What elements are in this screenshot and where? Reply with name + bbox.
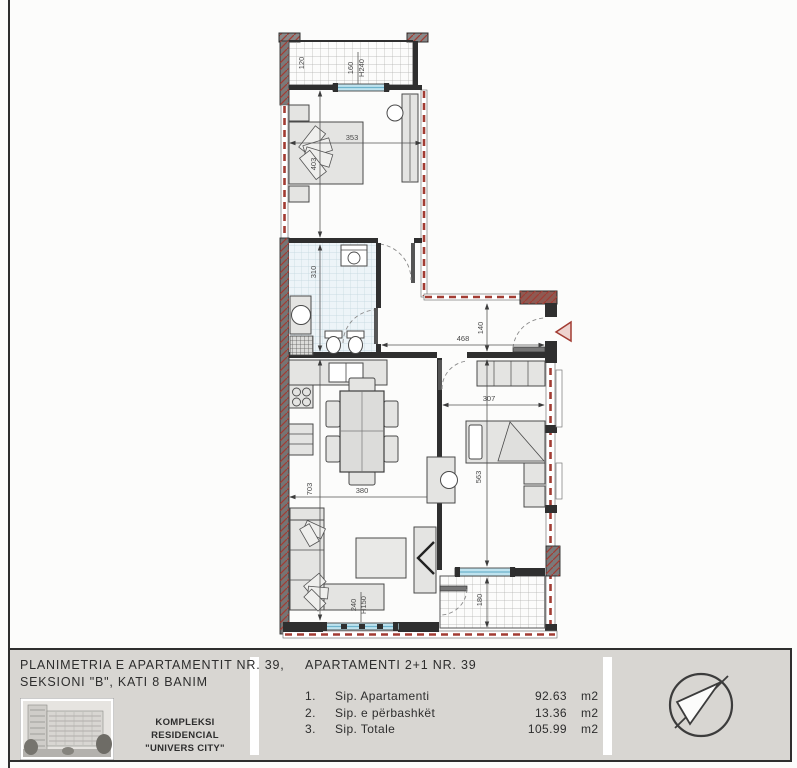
tv-unit xyxy=(414,527,436,593)
dim-window2-width: 240 xyxy=(349,599,358,612)
dim-bedroom1-width: 353 xyxy=(346,133,359,142)
floor-plan-sheet: 120 160 H240 xyxy=(0,0,797,768)
dim-bedroom1-height: 403 xyxy=(309,158,318,171)
floor-plan-drawing: 120 160 H240 xyxy=(0,0,797,645)
complex-name-line2: "UNIVERS CITY" xyxy=(122,742,248,755)
area-row: 1. Sip. Apartamenti 92.63 m2 xyxy=(305,688,603,705)
balcony-bottom-floor xyxy=(440,576,545,628)
area-row-label: Sip. Apartamenti xyxy=(335,688,505,705)
bathroom: 310 xyxy=(289,243,381,358)
dim-bathroom-height: 310 xyxy=(309,266,318,279)
dim-living-width: 380 xyxy=(356,486,369,495)
door-leaf xyxy=(438,360,442,390)
coffee-table xyxy=(356,538,406,578)
nightstand xyxy=(524,486,545,507)
window-bedroom2 xyxy=(455,567,545,577)
washing-machine xyxy=(341,245,367,266)
area-row: 3. Sip. Totale 105.99 m2 xyxy=(305,721,603,738)
dim-living-height: 703 xyxy=(305,483,314,496)
area-row-value: 13.36 xyxy=(505,705,567,722)
bedroom-2: 307 563 xyxy=(427,358,545,570)
dim-bedroom2-width: 307 xyxy=(483,394,496,403)
area-row-number: 1. xyxy=(305,688,335,705)
balcony-door-leaf xyxy=(440,586,467,591)
window-living xyxy=(322,622,399,631)
title-block-left: PLANIMETRIA E APARTAMENTIT NR. 39, SEKSI… xyxy=(10,650,250,760)
entry-door-leaf xyxy=(513,347,545,352)
door-arc xyxy=(380,244,411,280)
area-row: 2. Sip. e përbashkët 13.36 m2 xyxy=(305,705,603,722)
bidet xyxy=(347,331,364,354)
area-row-number: 2. xyxy=(305,705,335,722)
dim-hall-width: 468 xyxy=(457,334,470,343)
door-leaf xyxy=(411,243,415,283)
title-block-areas: APARTAMENTI 2+1 NR. 39 1. Sip. Apartamen… xyxy=(259,650,603,760)
dining-table xyxy=(326,378,398,485)
area-row-value: 92.63 xyxy=(505,688,567,705)
bed-pillow xyxy=(469,425,482,459)
entry-arrow-icon xyxy=(556,322,571,341)
title-block-north xyxy=(612,650,790,760)
door-leaf xyxy=(374,308,378,344)
area-row-value: 105.99 xyxy=(505,721,567,738)
toilet xyxy=(325,331,342,354)
area-row-unit: m2 xyxy=(567,688,611,705)
area-row-label: Sip. e përbashkët xyxy=(335,705,505,722)
dim-balcony1-width: 120 xyxy=(297,57,306,70)
north-arrow-icon xyxy=(659,663,743,747)
nightstand xyxy=(289,186,309,202)
title-block: PLANIMETRIA E APARTAMENTIT NR. 39, SEKSI… xyxy=(8,648,792,762)
dim-bedroom2-height: 563 xyxy=(474,471,483,484)
nightstand xyxy=(524,463,545,484)
shower-tray xyxy=(290,336,313,355)
balcony-bottom: 180 xyxy=(440,567,545,628)
building-photo xyxy=(20,698,114,760)
area-table: 1. Sip. Apartamenti 92.63 m2 2. Sip. e p… xyxy=(305,688,603,738)
nightstand xyxy=(289,105,309,121)
dim-window1-height: H240 xyxy=(357,59,366,77)
bed-single xyxy=(466,421,545,463)
dim-window2-height: H150 xyxy=(359,596,368,614)
dim-window1-width: 160 xyxy=(346,62,355,75)
entry-door-arc xyxy=(513,318,545,348)
washbasin xyxy=(290,296,311,334)
dim-balcony2-height: 180 xyxy=(475,594,484,607)
desk-chair xyxy=(427,457,458,503)
area-row-label: Sip. Totale xyxy=(335,721,505,738)
kitchen-cabinet xyxy=(289,424,313,455)
door-arc xyxy=(442,361,467,389)
kitchen-living-room: 240 H150 380 703 xyxy=(283,360,439,632)
area-row-unit: m2 xyxy=(567,705,611,722)
plan-title-line2: SEKSIONI "B", KATI 8 BANIM xyxy=(20,674,250,691)
chair xyxy=(387,105,403,121)
dim-hall-height: 140 xyxy=(476,322,485,335)
apartment-header: APARTAMENTI 2+1 NR. 39 xyxy=(305,658,603,672)
complex-name: KOMPLEKSI RESIDENCIAL "UNIVERS CITY" xyxy=(122,716,248,755)
hallway: 468 140 xyxy=(381,304,571,358)
complex-name-line1: KOMPLEKSI RESIDENCIAL xyxy=(122,716,248,742)
area-row-unit: m2 xyxy=(567,721,611,738)
area-row-number: 3. xyxy=(305,721,335,738)
plan-title-line1: PLANIMETRIA E APARTAMENTIT NR. 39, xyxy=(20,657,250,674)
